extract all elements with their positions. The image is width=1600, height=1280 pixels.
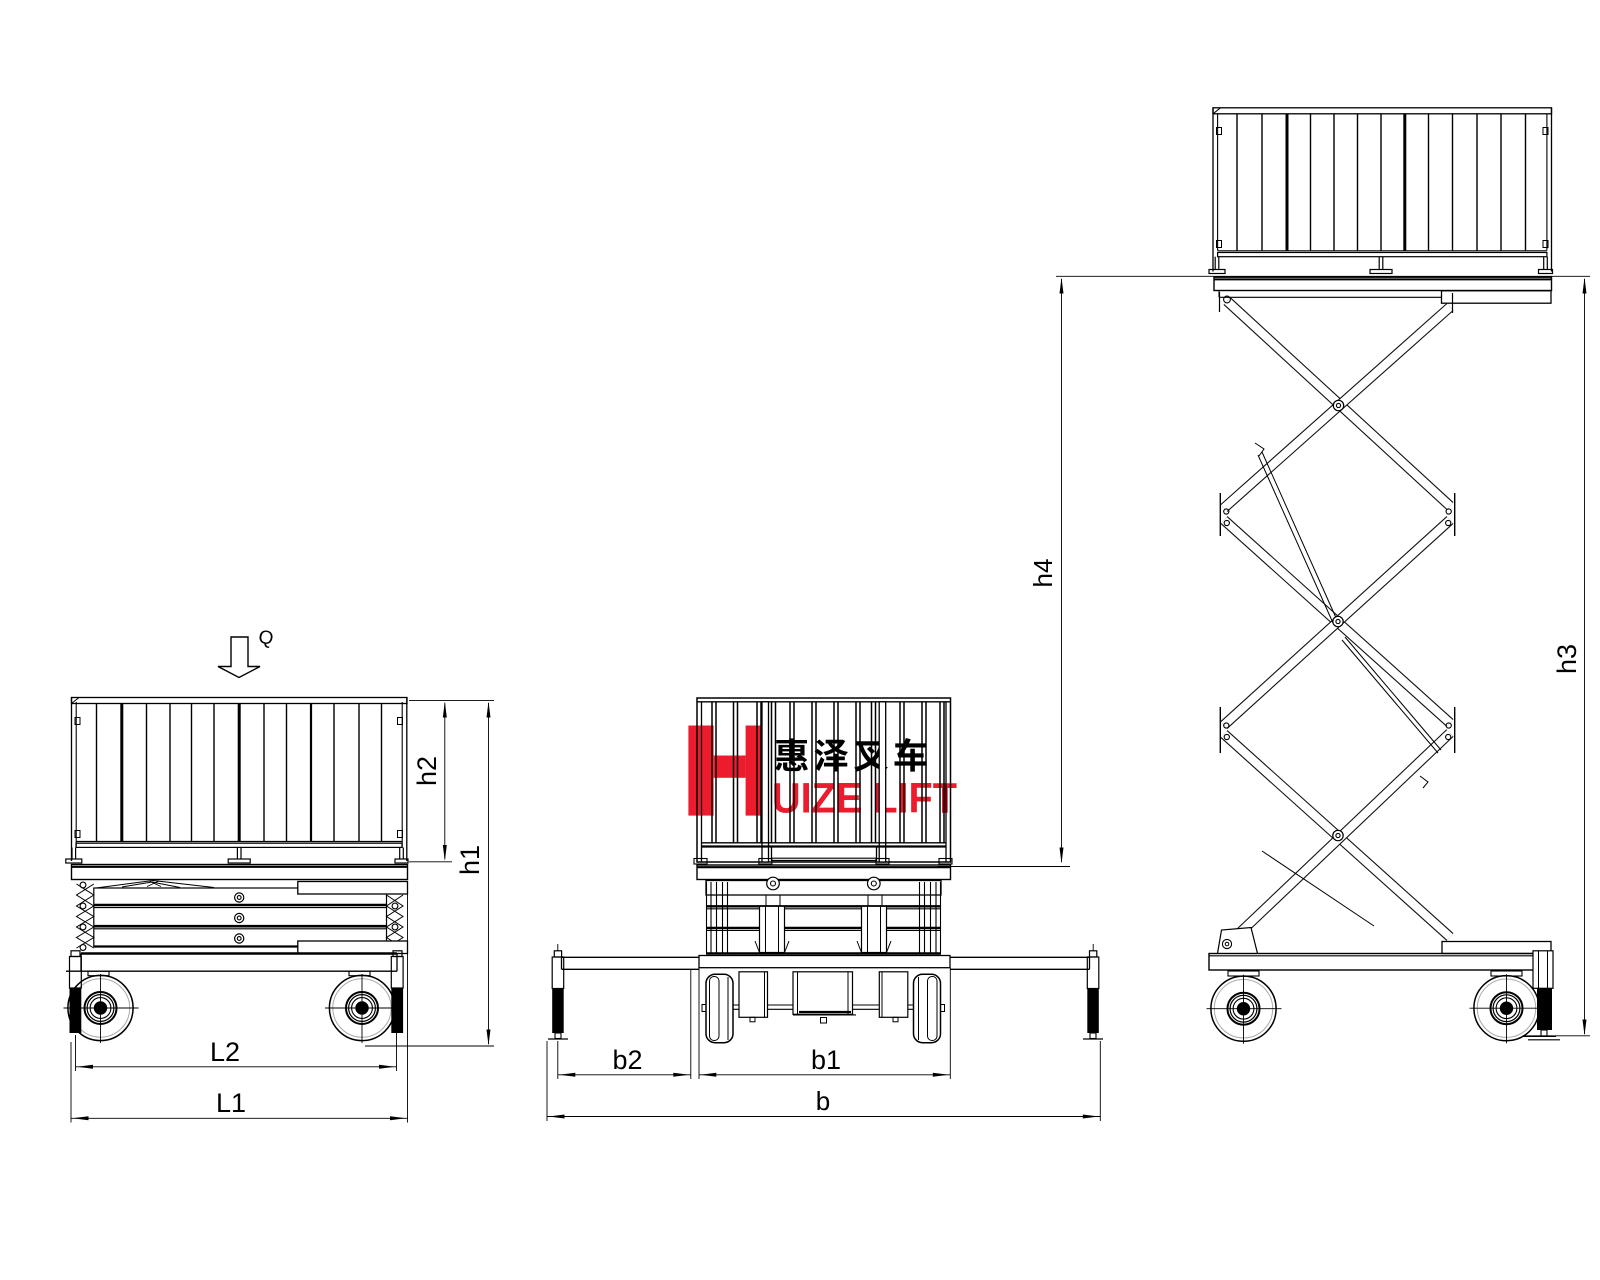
svg-text:UIZE LIFT: UIZE LIFT xyxy=(772,776,957,823)
svg-text:h2: h2 xyxy=(412,756,442,786)
svg-text:b: b xyxy=(816,1086,830,1116)
svg-text:h4: h4 xyxy=(1028,559,1058,588)
svg-text:b1: b1 xyxy=(811,1045,841,1075)
svg-text:L1: L1 xyxy=(216,1088,246,1118)
svg-text:h3: h3 xyxy=(1552,644,1582,674)
svg-text:h1: h1 xyxy=(455,845,485,875)
svg-text:L2: L2 xyxy=(210,1037,240,1067)
svg-text:b2: b2 xyxy=(612,1045,642,1075)
